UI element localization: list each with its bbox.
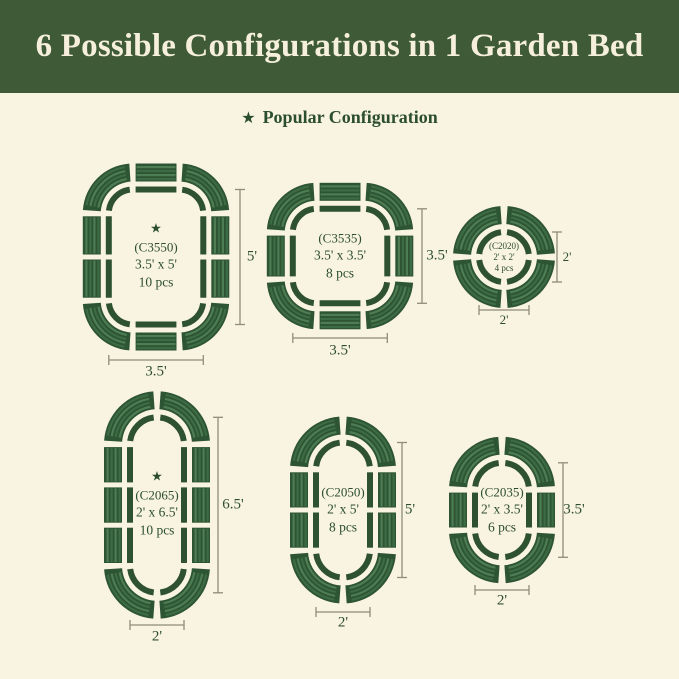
height-dimension-label: 3.5' [563, 502, 584, 519]
config-model: (C3550) [134, 239, 177, 256]
width-dimension-label: 2' [338, 615, 348, 632]
config-label-c2035: ★ (C2035) 2' x 3.5' 6 pcs [480, 484, 523, 537]
width-dimension-label: 2' [497, 593, 507, 610]
width-dimension-label: 3.5' [329, 343, 350, 360]
config-model: (C2020) [489, 241, 519, 252]
width-dimension-label: 3.5' [145, 364, 166, 381]
config-label-c2065: ★ (C2065) 2' x 6.5' 10 pcs [135, 470, 178, 539]
config-model: (C2050) [321, 484, 364, 501]
config-label-c2020: ★ (C2020) 2' x 2' 4 pcs [489, 241, 519, 273]
config-pieces: 8 pcs [314, 265, 366, 283]
popular-star-icon: ★ [135, 470, 178, 484]
config-pieces: 10 pcs [134, 274, 177, 292]
config-label-c3550: ★ (C3550) 3.5' x 5' 10 pcs [134, 222, 177, 291]
height-dimension-label: 5' [405, 502, 415, 519]
config-size: 3.5' x 3.5' [314, 247, 366, 265]
popular-star-icon: ★ [134, 222, 177, 236]
garden-bed-configurations-diagram [0, 0, 679, 679]
height-dimension-label: 6.5' [222, 497, 243, 514]
height-dimension-label: 5' [247, 249, 257, 266]
height-dimension-label: 2' [563, 249, 572, 265]
width-dimension-label: 2' [152, 629, 162, 646]
config-size: 2' x 3.5' [480, 501, 523, 519]
config-label-c2050: ★ (C2050) 2' x 5' 8 pcs [321, 484, 364, 537]
config-size: 3.5' x 5' [134, 256, 177, 274]
config-pieces: 10 pcs [135, 522, 178, 540]
config-size: 2' x 2' [489, 252, 519, 263]
infographic: 6 Possible Configurations in 1 Garden Be… [0, 0, 679, 679]
config-pieces: 6 pcs [480, 519, 523, 537]
config-model: (C3535) [314, 230, 366, 247]
config-model: (C2065) [135, 487, 178, 504]
height-dimension-label: 3.5' [426, 248, 447, 265]
config-size: 2' x 5' [321, 501, 364, 519]
config-pieces: 8 pcs [321, 519, 364, 537]
width-dimension-label: 2' [500, 312, 509, 328]
config-size: 2' x 6.5' [135, 504, 178, 522]
config-label-c3535: ★ (C3535) 3.5' x 3.5' 8 pcs [314, 230, 366, 283]
config-model: (C2035) [480, 484, 523, 501]
config-pieces: 4 pcs [489, 262, 519, 273]
